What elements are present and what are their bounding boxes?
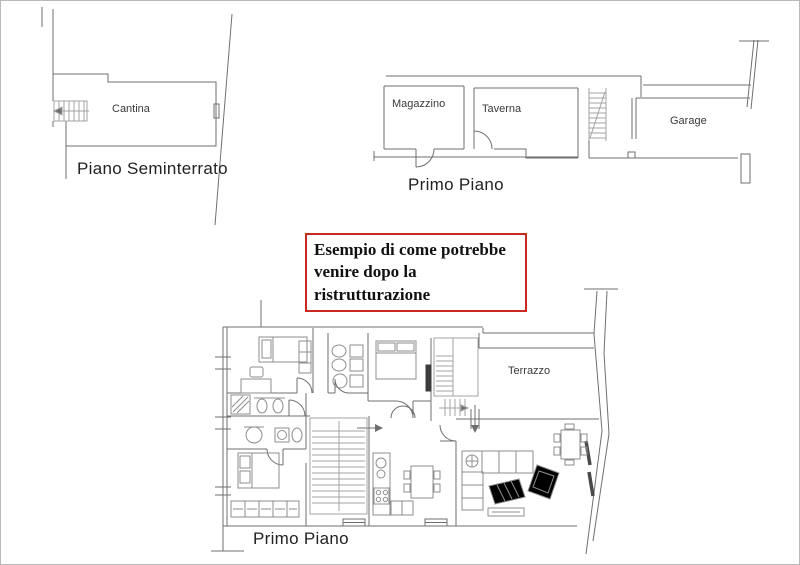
plan-title-renovated-first-floor: Primo Piano (253, 529, 349, 549)
basement-plan-walls (42, 7, 232, 225)
room-label-cantina: Cantina (112, 103, 150, 115)
bathroom1-shower (231, 395, 250, 414)
chimney-wall (426, 365, 431, 391)
living-rug (489, 479, 525, 504)
bedroom3-bed (376, 341, 416, 379)
living-corner-unit (462, 451, 482, 472)
renovated-plan-stairs-main (310, 418, 367, 514)
bathroom3-fixtures (332, 345, 363, 388)
bathroom2-fixtures (244, 427, 302, 443)
bedroom2-bed (238, 453, 279, 488)
room-label-terrazzo: Terrazzo (508, 365, 550, 377)
basement-stairs (54, 101, 89, 121)
bedroom1-wardrobe (299, 341, 311, 373)
plan-title-first-floor: Primo Piano (408, 175, 504, 195)
first-floor-plan-walls (374, 40, 769, 183)
dining-table-right (554, 424, 587, 465)
renovated-plan-stairs-top (434, 338, 478, 416)
renovation-annotation-box: Esempio di come potrebbe venire dopo la … (305, 233, 527, 312)
bedroom1-desk-chair (241, 367, 271, 393)
first-floor-stairs (589, 88, 606, 141)
bathroom1-sinks (254, 398, 285, 413)
plan-title-basement: Piano Seminterrato (77, 159, 228, 179)
bedroom2-wardrobe (231, 501, 299, 517)
room-label-garage: Garage (670, 115, 707, 127)
tv-stand (488, 508, 524, 516)
room-label-taverna: Taverna (482, 103, 521, 115)
renovated-plan-outer-walls (211, 289, 618, 554)
room-label-magazzino: Magazzino (392, 98, 445, 110)
floorplan-page: Cantina Piano Seminterrato Magazzino Tav… (0, 0, 800, 565)
dining-table-center (404, 466, 440, 498)
